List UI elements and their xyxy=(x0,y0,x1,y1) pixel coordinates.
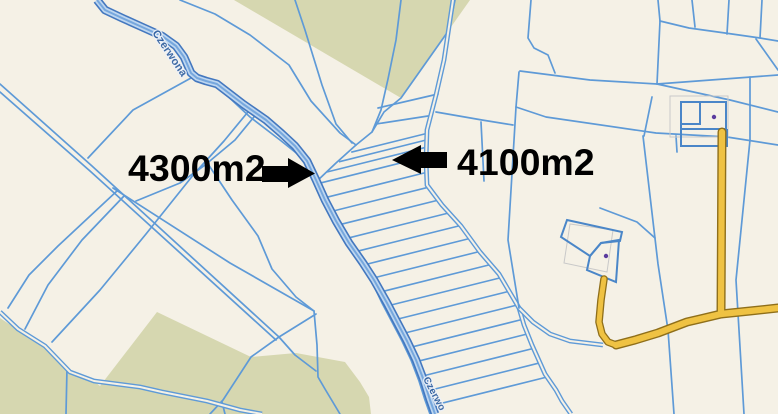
svg-text:4100m2: 4100m2 xyxy=(457,141,595,183)
svg-text:4300m2: 4300m2 xyxy=(128,147,266,189)
